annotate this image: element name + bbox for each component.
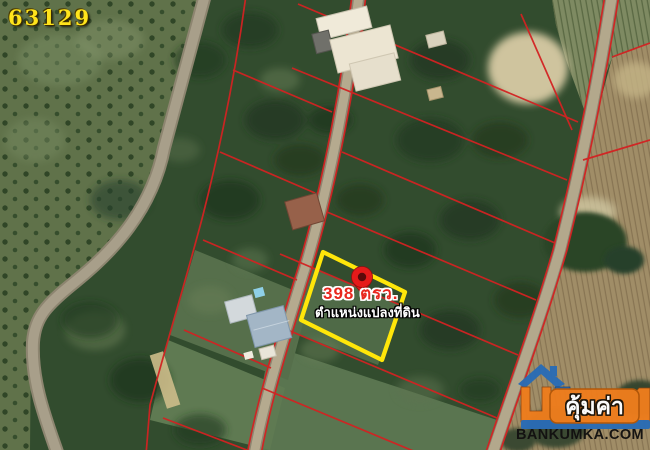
plot-position-caption: ตำแหน่งแปลงที่ดิน — [315, 302, 420, 323]
watermark-website-label: BANKUMKA.COM — [506, 427, 650, 443]
plot-number-overlay: 63129 — [8, 5, 91, 30]
watermark-banner-label: คุ้มค่า — [550, 386, 639, 424]
watermark-logo: คุ้มค่า BANKUMKA.COM — [506, 356, 650, 450]
satellite-map-screenshot: 63129 398 ตรว. ตำแหน่งแปลงที่ดิน คุ้มค่า… — [0, 0, 650, 450]
